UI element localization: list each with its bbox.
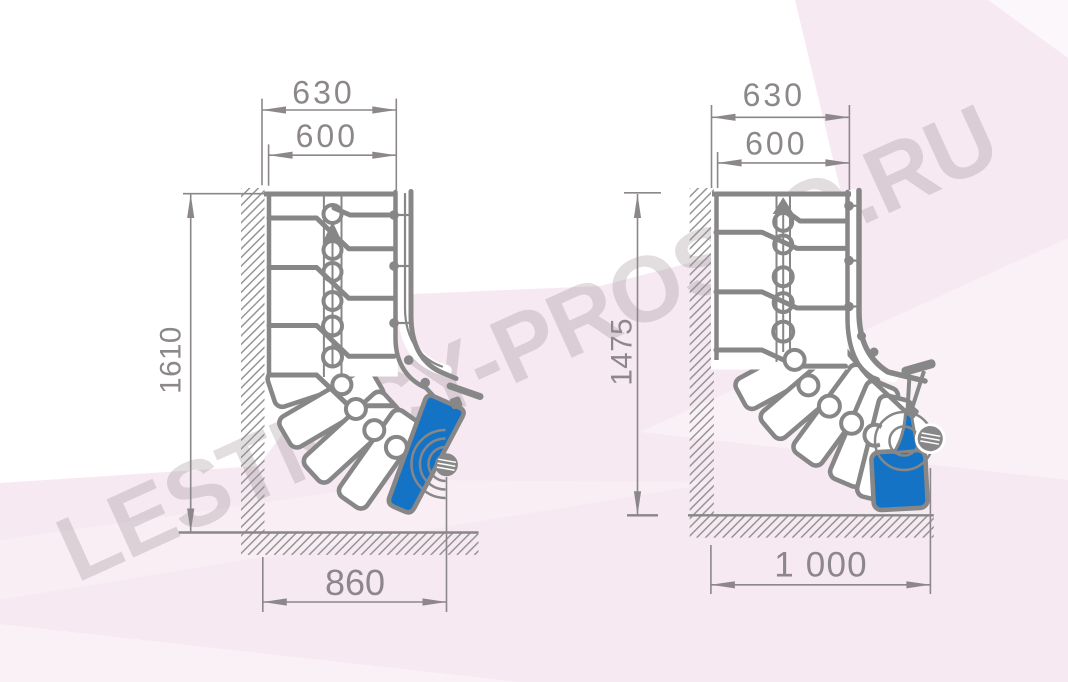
svg-text:630: 630 xyxy=(292,75,354,111)
svg-text:860: 860 xyxy=(325,562,385,603)
svg-text:630: 630 xyxy=(743,77,805,113)
svg-text:600: 600 xyxy=(296,118,358,154)
svg-text:1610: 1610 xyxy=(155,326,188,394)
svg-text:1 000: 1 000 xyxy=(774,545,868,584)
svg-text:1475: 1475 xyxy=(606,318,639,386)
svg-text:600: 600 xyxy=(745,126,807,162)
